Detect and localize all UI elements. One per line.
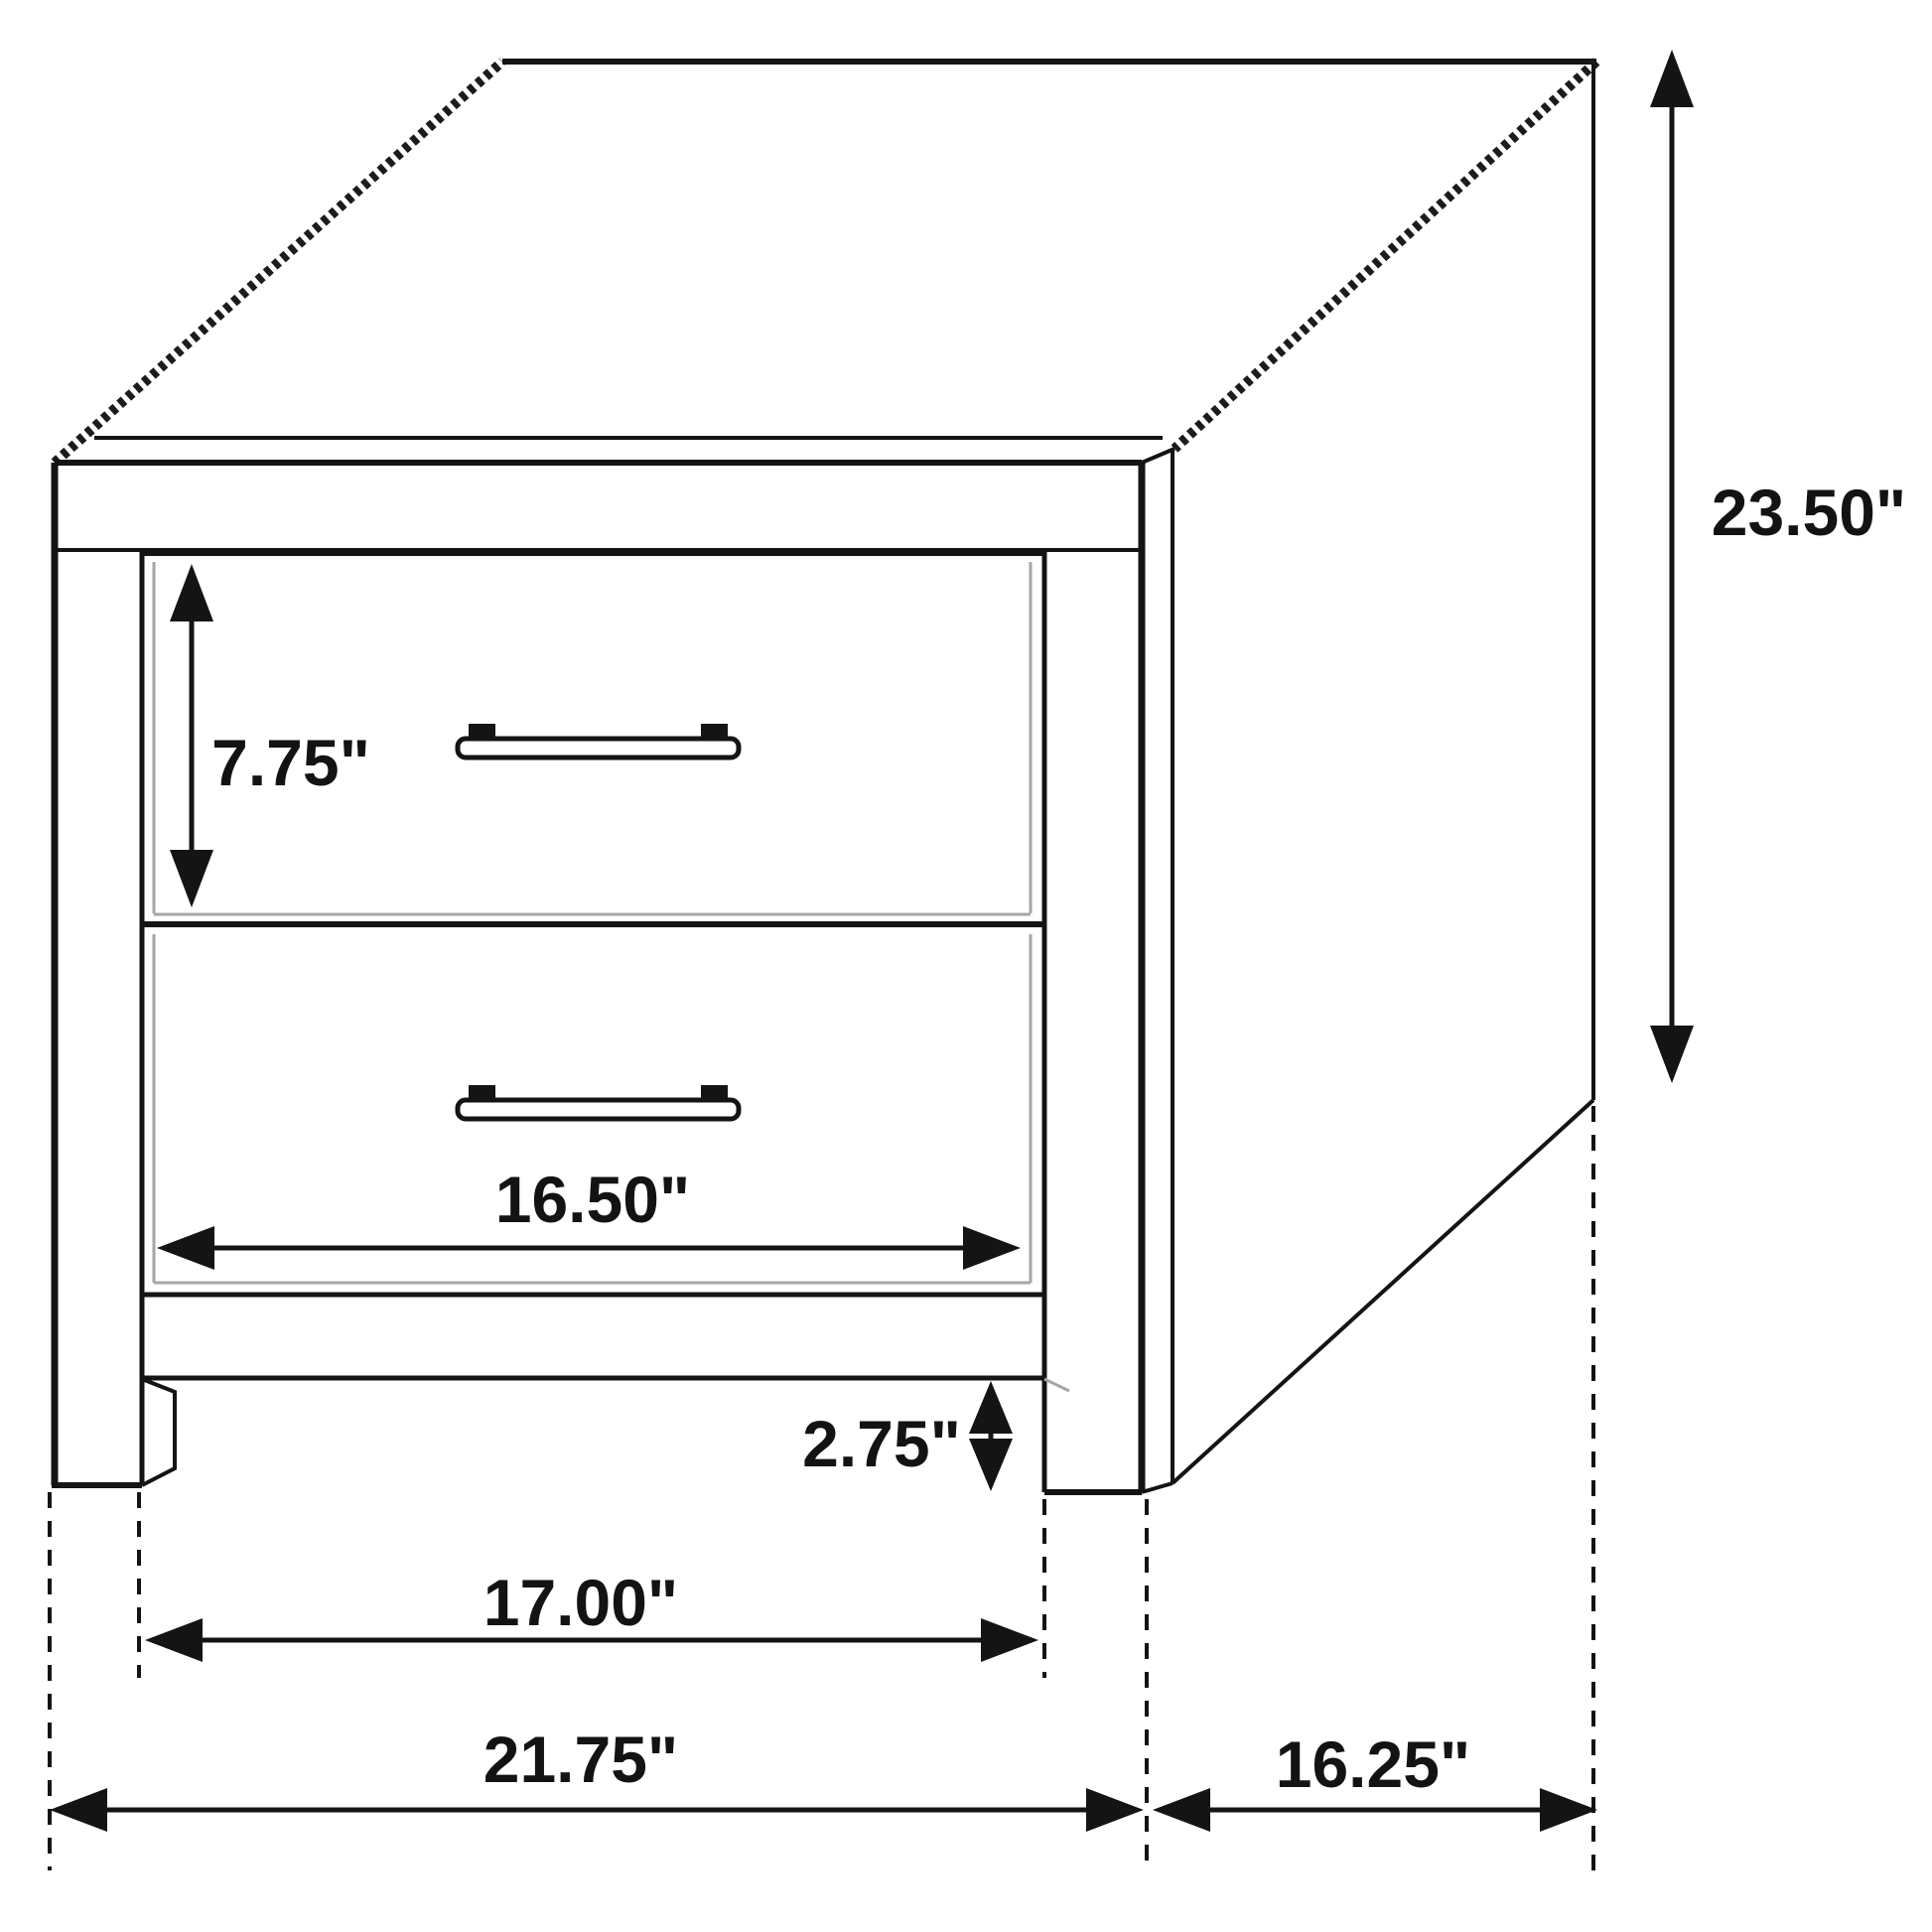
dimension-drawer-front-height: 7.75" [170, 564, 370, 907]
arrowhead-down-icon [170, 850, 213, 907]
side-bottom-front-chamfer [1142, 1483, 1173, 1492]
drawer-top-handle [458, 724, 739, 758]
top-right-corner-chamfer [1142, 449, 1174, 463]
dimension-width-between-legs: 17.00" [145, 1566, 1038, 1662]
nightstand-front-frame [55, 463, 1142, 1492]
top-right-receding-edge [1174, 62, 1596, 449]
arrowhead-left-icon [157, 1226, 214, 1270]
arrowhead-left-icon [50, 1788, 107, 1832]
arrowhead-right-icon [1086, 1788, 1144, 1832]
nightstand-top-face [55, 62, 1596, 463]
arrowhead-down-icon [1650, 1026, 1694, 1083]
drawer-bottom-handle [458, 1085, 739, 1119]
dimension-drawer-opening-width: 16.50" [157, 1163, 1021, 1270]
dimension-leg-height: 2.75" [802, 1381, 1013, 1491]
arrowhead-right-icon [1540, 1788, 1597, 1832]
arrowhead-right-icon [963, 1226, 1021, 1270]
leg-left [52, 1379, 175, 1485]
arrowhead-down-icon [969, 1439, 1013, 1491]
dim-label-overall-height: 23.50" [1712, 476, 1906, 549]
dim-label-width-between-legs: 17.00" [483, 1566, 678, 1639]
handle-bar [458, 739, 739, 758]
dim-label-drawer-opening-width: 16.50" [495, 1163, 690, 1236]
nightstand-side-panel [1142, 64, 1593, 1492]
arrowhead-left-icon [145, 1618, 203, 1662]
right-leg-cutout-shadow [1044, 1379, 1069, 1391]
dim-label-drawer-front-height: 7.75" [211, 726, 370, 799]
arrowhead-up-icon [170, 564, 213, 621]
arrowhead-up-icon [969, 1381, 1013, 1434]
side-bottom-edge [1173, 1100, 1593, 1483]
dimension-overall-width: 21.75" [50, 1723, 1144, 1832]
handle-bar [458, 1100, 739, 1119]
dimension-side-depth: 16.25" [1153, 1727, 1597, 1832]
arrowhead-up-icon [1650, 50, 1694, 107]
left-leg-inner-face [142, 1379, 175, 1485]
arrowhead-left-icon [1153, 1788, 1210, 1832]
dimension-overall-height: 23.50" [1650, 50, 1906, 1083]
dim-label-leg-height: 2.75" [802, 1407, 961, 1480]
dim-label-side-depth: 16.25" [1276, 1727, 1470, 1801]
nightstand-dimension-diagram: 7.75" 23.50" 16.50" 2.75" 17 [0, 0, 1932, 1932]
top-left-receding-edge [55, 62, 502, 463]
arrowhead-right-icon [981, 1618, 1038, 1662]
leg-right [1044, 1379, 1142, 1492]
dim-label-overall-width: 21.75" [483, 1723, 678, 1796]
dimension-diagram-canvas: 7.75" 23.50" 16.50" 2.75" 17 [0, 0, 1932, 1932]
